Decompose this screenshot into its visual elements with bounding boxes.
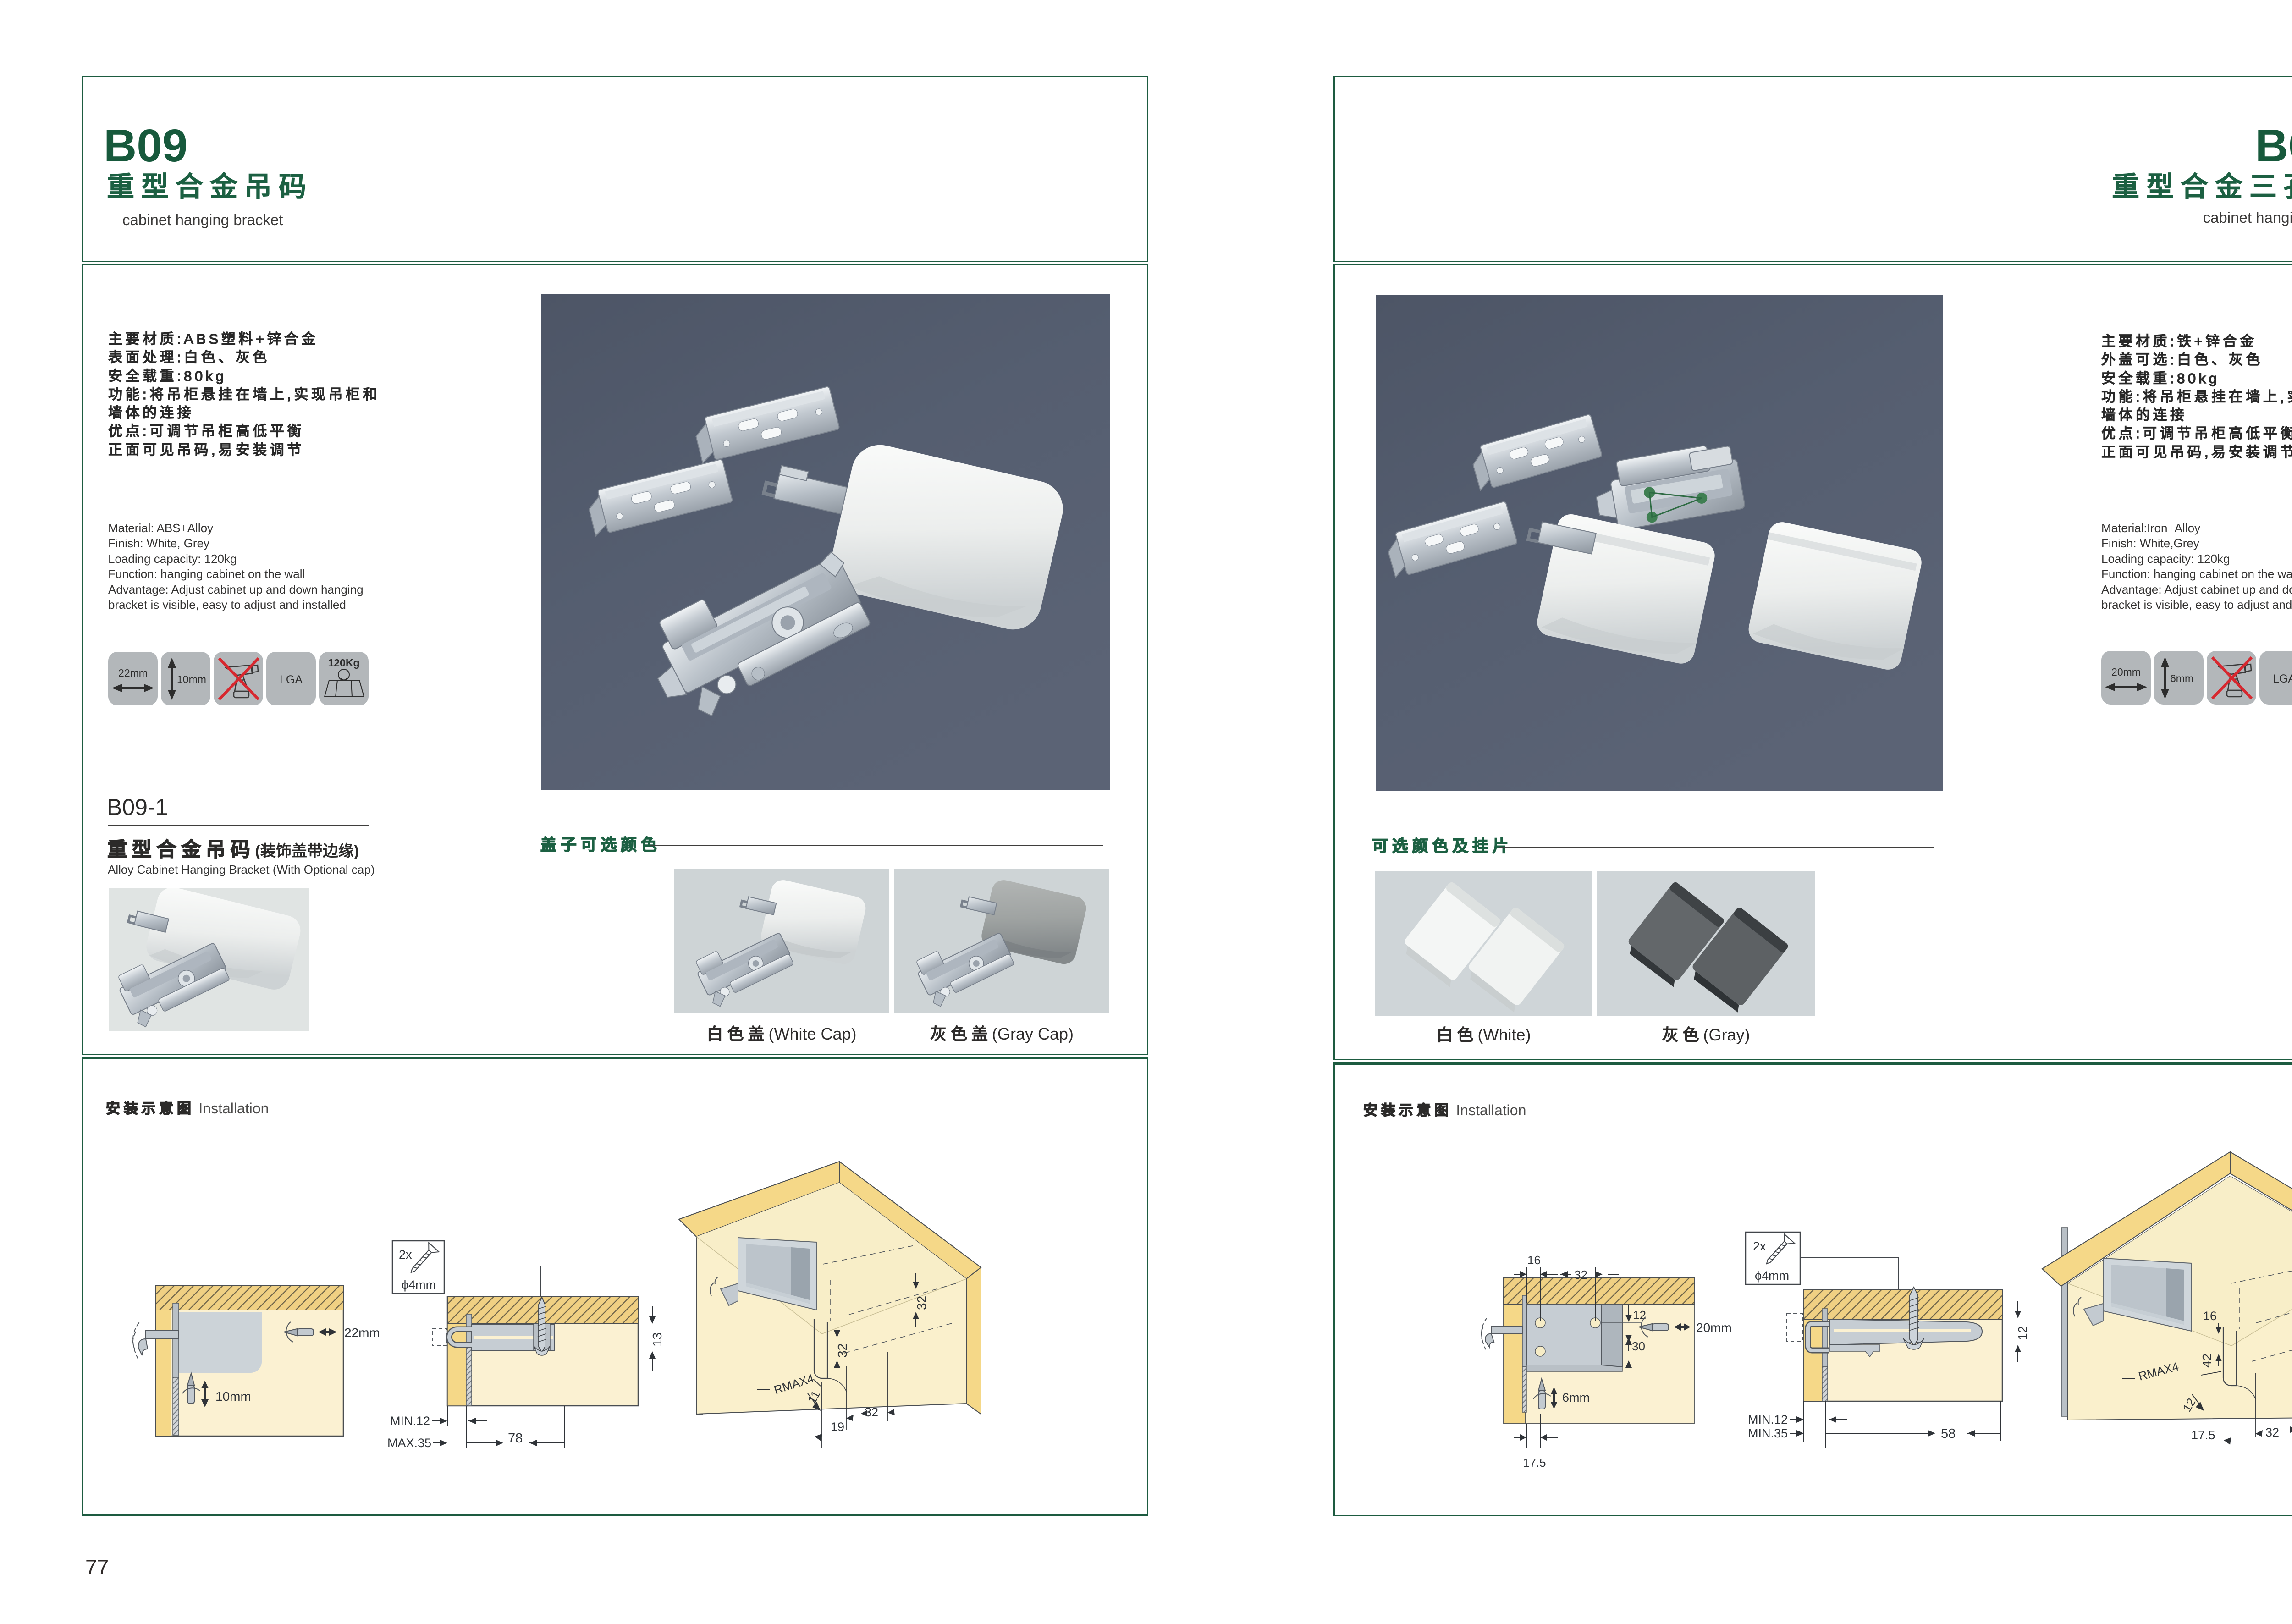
svg-text:6mm: 6mm [2170,672,2193,684]
svg-text:10mm: 10mm [215,1389,251,1404]
svg-text:42: 42 [2200,1354,2214,1368]
svg-text:12: 12 [1633,1308,1646,1322]
svg-text:22mm: 22mm [118,667,148,679]
svg-text:2x: 2x [1753,1239,1766,1253]
svg-text:MIN.12: MIN.12 [390,1414,430,1428]
svg-text:6mm: 6mm [1562,1391,1590,1404]
svg-text:MIN.35: MIN.35 [1748,1426,1788,1440]
svg-text:ϕ4mm: ϕ4mm [1755,1269,1789,1283]
svg-text:32: 32 [2265,1426,2279,1439]
svg-text:30: 30 [1632,1339,1645,1353]
svg-text:LGA: LGA [280,673,303,686]
svg-text:17.5: 17.5 [2191,1428,2215,1442]
svg-text:20mm: 20mm [1696,1321,1732,1335]
svg-text:19: 19 [831,1420,844,1434]
svg-text:17.5: 17.5 [1523,1456,1546,1470]
svg-text:16: 16 [1527,1253,1541,1267]
svg-text:32: 32 [1574,1268,1587,1282]
svg-text:78: 78 [508,1431,523,1446]
svg-text:2x: 2x [399,1248,412,1261]
svg-text:32: 32 [915,1296,929,1310]
svg-text:MAX.35: MAX.35 [387,1436,431,1450]
svg-text:13: 13 [650,1332,664,1347]
svg-text:12: 12 [2016,1326,2030,1340]
svg-text:MIN.12: MIN.12 [1748,1413,1788,1426]
svg-text:58: 58 [1941,1426,1956,1441]
svg-text:32: 32 [835,1343,849,1358]
svg-text:20mm: 20mm [2111,666,2141,678]
svg-text:120Kg: 120Kg [328,657,359,669]
svg-text:ϕ4mm: ϕ4mm [402,1278,436,1292]
svg-text:LGA: LGA [2273,672,2292,685]
svg-text:10mm: 10mm [177,673,206,685]
svg-text:16: 16 [2203,1309,2217,1323]
svg-text:22mm: 22mm [344,1326,380,1340]
